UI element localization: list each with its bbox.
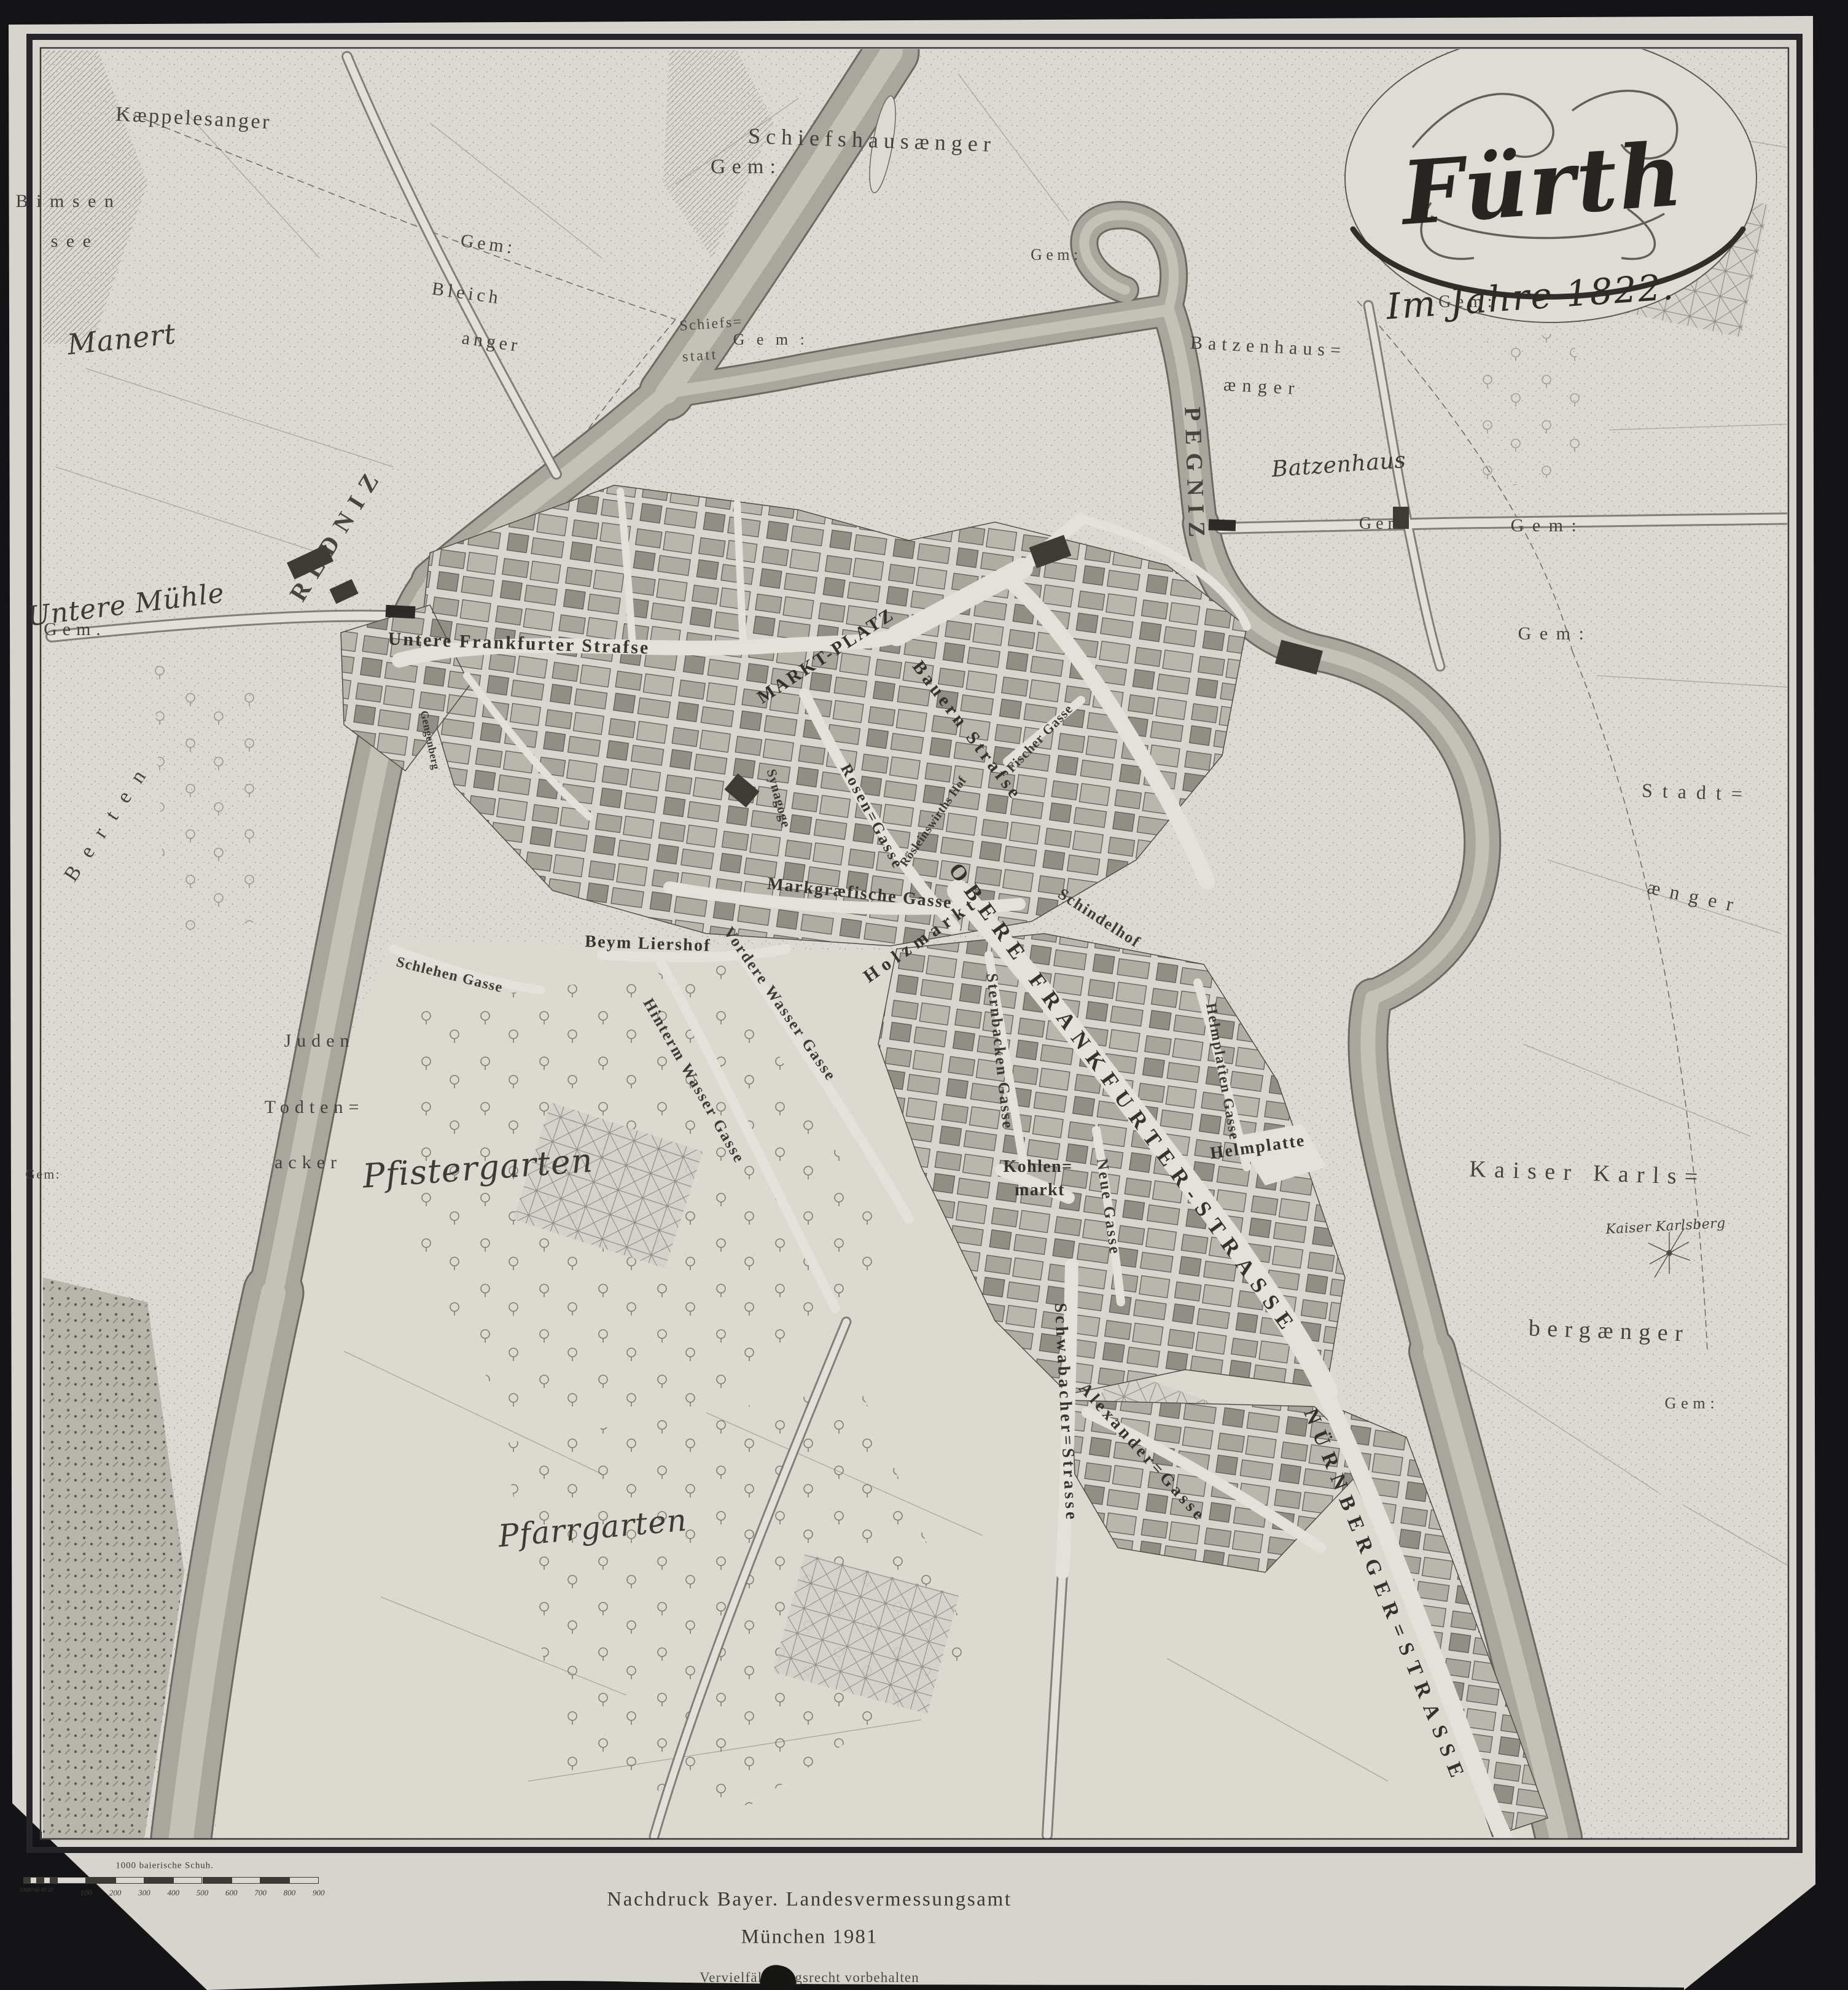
cartouche — [1345, 34, 1756, 322]
map-artwork — [0, 0, 1848, 1990]
map-photo: Fürth Im Jahre 1822. KæppelesangerBimsen… — [0, 0, 1848, 1990]
map-engraving — [42, 34, 1804, 1840]
